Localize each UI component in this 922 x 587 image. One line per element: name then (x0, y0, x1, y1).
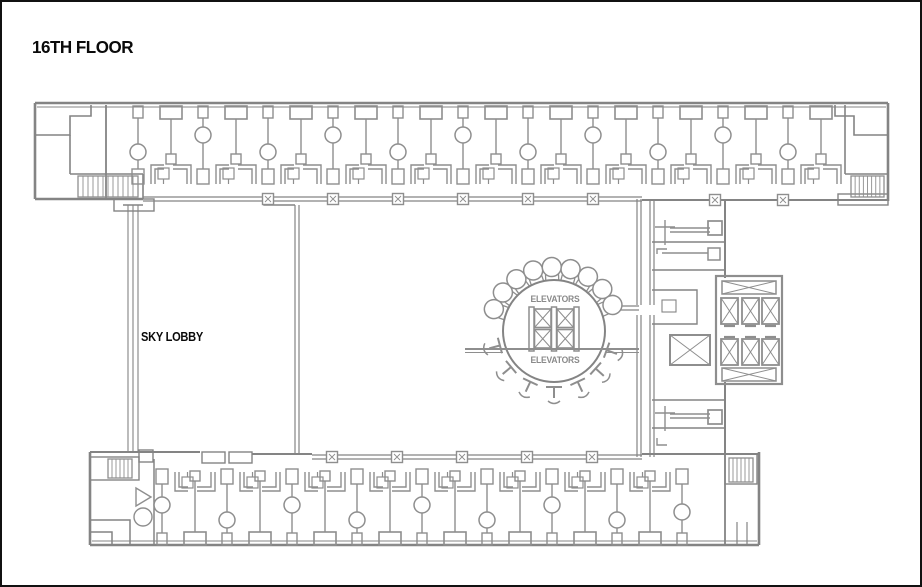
page-title: 16TH FLOOR (32, 37, 134, 57)
stairwell-hatches (78, 176, 884, 482)
top-wing-rooms (130, 106, 841, 184)
sky-lobby-label: SKY LOBBY (141, 330, 204, 344)
bottom-wing-rooms (154, 469, 690, 545)
elevators-label-top: ELEVATORS (531, 294, 580, 304)
elevators-label-bottom: ELEVATORS (531, 355, 580, 365)
floor-plan-page: 16TH FLOOR SKY LOBBY ELEVATORS ELEVATORS (0, 0, 922, 587)
right-wing-furniture (655, 220, 722, 445)
service-elevator-core (670, 276, 782, 384)
floor-plan: 16TH FLOOR SKY LOBBY ELEVATORS ELEVATORS (2, 2, 922, 587)
corner-fixture (134, 488, 152, 526)
